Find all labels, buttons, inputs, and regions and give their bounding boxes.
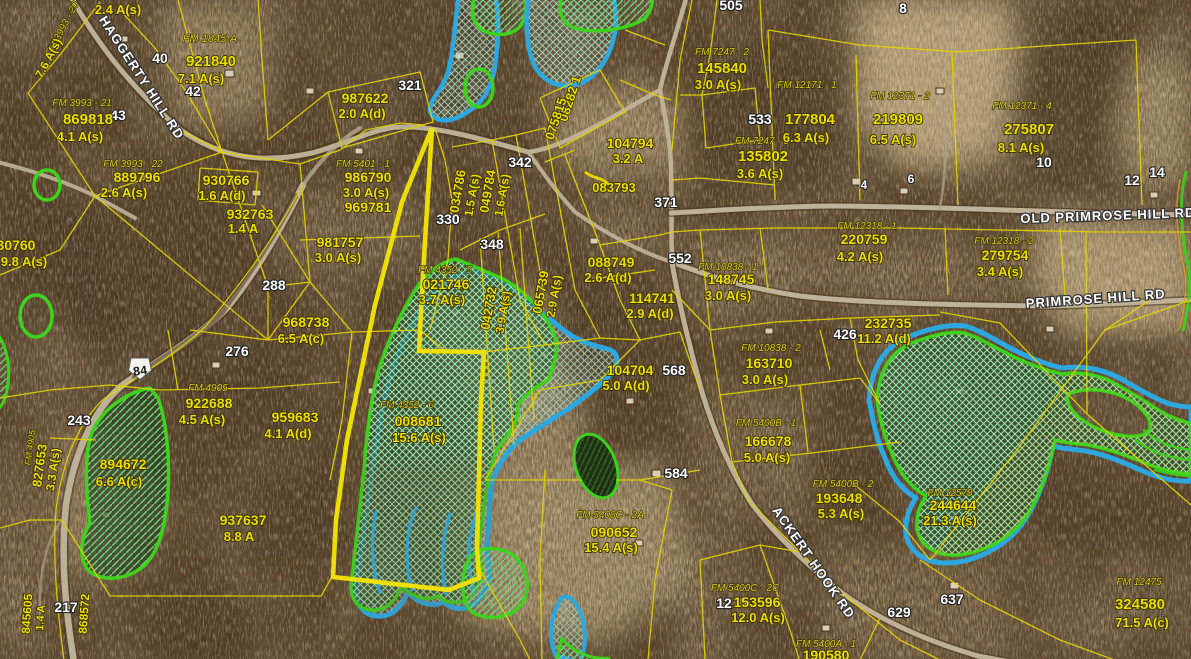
svg-text:FM 7247 - 3: FM 7247 - 3 <box>735 136 789 147</box>
svg-text:FM 12171 - 1: FM 12171 - 1 <box>777 80 836 91</box>
svg-text:279754: 279754 <box>982 247 1029 263</box>
svg-text:342: 342 <box>508 154 532 170</box>
svg-text:1.6 A(d): 1.6 A(d) <box>198 188 245 203</box>
svg-text:348: 348 <box>480 236 504 252</box>
svg-text:986790: 986790 <box>345 169 392 185</box>
svg-text:637: 637 <box>940 591 964 607</box>
svg-text:937637: 937637 <box>220 512 267 528</box>
svg-text:177804: 177804 <box>785 111 836 128</box>
svg-text:324580: 324580 <box>1115 596 1165 613</box>
svg-text:889796: 889796 <box>114 169 161 185</box>
svg-text:219809: 219809 <box>873 111 923 128</box>
svg-text:4.1 A(s): 4.1 A(s) <box>57 129 103 144</box>
svg-text:166678: 166678 <box>745 433 792 449</box>
svg-text:6.3 A(s): 6.3 A(s) <box>783 130 829 145</box>
svg-text:3.0 A(s): 3.0 A(s) <box>343 185 389 200</box>
svg-text:083793: 083793 <box>592 180 635 195</box>
svg-text:193648: 193648 <box>816 490 863 506</box>
svg-text:2.9 A(d): 2.9 A(d) <box>626 306 673 321</box>
svg-text:232735: 232735 <box>865 315 912 331</box>
svg-text:148745: 148745 <box>708 271 755 287</box>
svg-text:2.6 A(s): 2.6 A(s) <box>101 185 147 200</box>
svg-text:12.0 A(s): 12.0 A(s) <box>731 610 785 625</box>
svg-text:71.5 A(c): 71.5 A(c) <box>1115 615 1169 630</box>
svg-text:533: 533 <box>748 111 772 127</box>
svg-text:244644: 244644 <box>930 497 977 513</box>
svg-text:5.0 A(d): 5.0 A(d) <box>602 378 649 393</box>
svg-text:1.4 A: 1.4 A <box>34 604 48 631</box>
svg-text:3.6 A(s): 3.6 A(s) <box>737 166 783 181</box>
svg-text:6.5 A(c): 6.5 A(c) <box>278 331 324 346</box>
svg-text:987622: 987622 <box>342 90 389 106</box>
svg-text:9.8 A(s): 9.8 A(s) <box>1 254 47 269</box>
svg-text:868572: 868572 <box>76 593 93 634</box>
svg-text:104704: 104704 <box>607 362 654 378</box>
svg-text:190580: 190580 <box>803 647 850 659</box>
svg-text:371: 371 <box>654 194 678 210</box>
svg-text:FM 4352 - 6: FM 4352 - 6 <box>380 400 434 411</box>
svg-text:921840: 921840 <box>186 53 236 70</box>
svg-text:276: 276 <box>225 343 249 359</box>
svg-text:14: 14 <box>1149 164 1165 180</box>
svg-text:3.0 A(s): 3.0 A(s) <box>742 372 788 387</box>
svg-text:163710: 163710 <box>746 355 793 371</box>
svg-text:552: 552 <box>668 250 692 266</box>
svg-text:21.3 A(s): 21.3 A(s) <box>923 513 977 528</box>
svg-text:505: 505 <box>719 0 743 13</box>
svg-text:894672: 894672 <box>100 456 147 472</box>
svg-text:968738: 968738 <box>283 314 330 330</box>
svg-text:5.0 A(s): 5.0 A(s) <box>744 450 790 465</box>
svg-text:15.4 A(s): 15.4 A(s) <box>584 540 638 555</box>
svg-text:3.4 A(s): 3.4 A(s) <box>977 264 1023 279</box>
svg-text:629: 629 <box>887 604 911 620</box>
svg-text:30760: 30760 <box>0 237 36 253</box>
svg-text:3.0 A(s): 3.0 A(s) <box>705 288 751 303</box>
svg-text:869818: 869818 <box>63 111 113 128</box>
svg-text:145840: 145840 <box>697 60 747 77</box>
svg-text:090652: 090652 <box>591 524 638 540</box>
svg-text:FM 10838 - 2: FM 10838 - 2 <box>741 343 801 354</box>
svg-text:FM 12371 - 4: FM 12371 - 4 <box>992 101 1052 112</box>
svg-text:288: 288 <box>262 277 286 293</box>
svg-text:FM 12318 - 2: FM 12318 - 2 <box>974 236 1034 247</box>
svg-text:2.6 A(d): 2.6 A(d) <box>584 270 631 285</box>
svg-text:FM 3993 - 21: FM 3993 - 21 <box>52 98 111 109</box>
svg-text:FM 5400C - 2A: FM 5400C - 2A <box>576 510 644 521</box>
svg-text:10: 10 <box>1036 154 1052 170</box>
svg-text:8.8 A: 8.8 A <box>224 529 255 544</box>
svg-text:FM 12475: FM 12475 <box>1116 577 1161 588</box>
svg-text:932763: 932763 <box>227 206 274 222</box>
svg-text:426: 426 <box>833 326 857 342</box>
svg-text:104794: 104794 <box>607 135 654 151</box>
svg-text:3.0 A(s): 3.0 A(s) <box>695 77 741 92</box>
svg-text:8: 8 <box>899 0 907 16</box>
svg-text:275807: 275807 <box>1004 121 1054 138</box>
svg-text:969781: 969781 <box>345 199 392 215</box>
svg-text:FM 4905: FM 4905 <box>188 383 228 394</box>
svg-text:8.1 A(s): 8.1 A(s) <box>998 140 1044 155</box>
svg-text:3.0 A(s): 3.0 A(s) <box>315 250 361 265</box>
svg-text:930766: 930766 <box>203 172 250 188</box>
svg-text:2.0 A(d): 2.0 A(d) <box>338 106 385 121</box>
svg-text:FM 12371 - 2: FM 12371 - 2 <box>870 91 930 102</box>
svg-text:FM 5400C - 2C: FM 5400C - 2C <box>711 583 780 594</box>
svg-text:584: 584 <box>664 465 688 481</box>
svg-text:568: 568 <box>662 362 686 378</box>
svg-text:FM 7247 - 2: FM 7247 - 2 <box>695 47 749 58</box>
svg-text:1.4 A: 1.4 A <box>228 221 259 236</box>
svg-text:6.6 A(c): 6.6 A(c) <box>96 474 142 489</box>
svg-text:220759: 220759 <box>841 231 888 247</box>
svg-text:12: 12 <box>1124 172 1140 188</box>
svg-text:40: 40 <box>152 50 168 66</box>
svg-text:15.6 A(s): 15.6 A(s) <box>392 430 446 445</box>
svg-text:088749: 088749 <box>588 254 635 270</box>
svg-text:12: 12 <box>716 595 732 611</box>
svg-text:922688: 922688 <box>186 395 233 411</box>
svg-text:021746: 021746 <box>423 276 470 292</box>
svg-text:4.2 A(s): 4.2 A(s) <box>837 249 883 264</box>
svg-text:11.2 A(d): 11.2 A(d) <box>857 331 911 346</box>
svg-text:42: 42 <box>185 83 201 99</box>
svg-text:321: 321 <box>398 77 422 93</box>
svg-text:5.3 A(s): 5.3 A(s) <box>818 506 864 521</box>
svg-text:959683: 959683 <box>272 409 319 425</box>
svg-text:114741: 114741 <box>629 290 675 306</box>
svg-text:4.1 A(d): 4.1 A(d) <box>264 426 311 441</box>
svg-text:FM 1845-A: FM 1845-A <box>183 33 237 45</box>
svg-text:3.7 A(s): 3.7 A(s) <box>419 292 465 307</box>
svg-text:845605: 845605 <box>19 593 36 634</box>
svg-text:4.5 A(s): 4.5 A(s) <box>179 412 225 427</box>
svg-text:981757: 981757 <box>317 234 364 250</box>
svg-text:3.2 A: 3.2 A <box>613 151 644 166</box>
svg-text:008681: 008681 <box>395 413 442 429</box>
svg-text:6: 6 <box>908 172 915 186</box>
svg-text:243: 243 <box>67 412 91 428</box>
svg-text:FM 5400B - 1: FM 5400B - 1 <box>736 418 797 429</box>
svg-text:4: 4 <box>861 178 868 192</box>
svg-text:217: 217 <box>54 599 78 615</box>
svg-text:FM 4352 - 5: FM 4352 - 5 <box>418 265 472 276</box>
svg-text:FM 5400B - 2: FM 5400B - 2 <box>813 479 874 490</box>
svg-text:2.4 A(s): 2.4 A(s) <box>95 2 141 17</box>
svg-text:84: 84 <box>132 363 148 379</box>
svg-text:135802: 135802 <box>738 148 788 165</box>
svg-text:6.5 A(s): 6.5 A(s) <box>870 132 916 147</box>
svg-text:153596: 153596 <box>734 594 781 610</box>
